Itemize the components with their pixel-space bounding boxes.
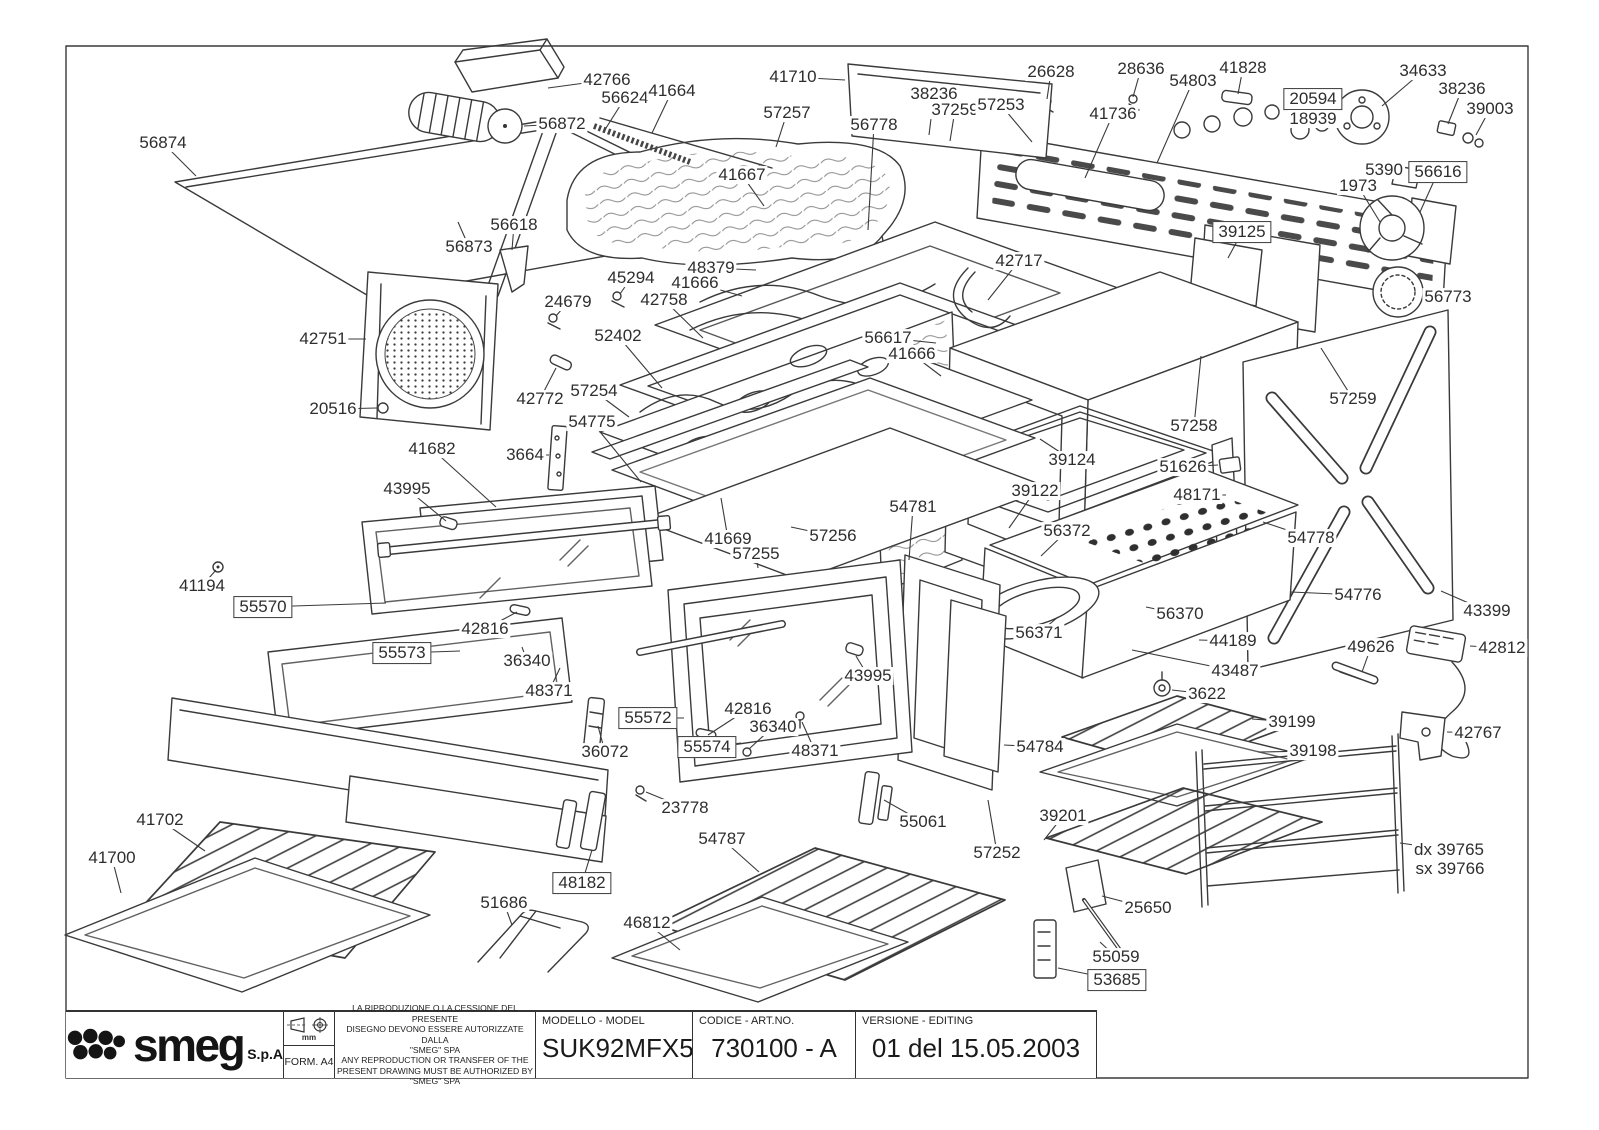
part-label-1973-26: 1973 bbox=[1337, 177, 1379, 195]
manufacturer-name: smeg bbox=[133, 1022, 243, 1068]
code-value: 730100 - A bbox=[699, 1033, 849, 1064]
part-label-44189-68: 44189 bbox=[1207, 632, 1258, 650]
part-label-55061-91: 55061 bbox=[897, 813, 948, 831]
part-label-51686-88: 51686 bbox=[478, 894, 529, 912]
part-label-48182-85: 48182 bbox=[552, 872, 611, 894]
part-label-57253-13: 57253 bbox=[975, 96, 1026, 114]
part-label-54776-58: 54776 bbox=[1332, 586, 1383, 604]
part-label-48171-55: 48171 bbox=[1171, 486, 1222, 504]
code-cell: CODICE - ART.NO. 730100 - A bbox=[692, 1010, 855, 1078]
part-label-42758-33: 42758 bbox=[638, 291, 689, 309]
part-label-39125-27: 39125 bbox=[1212, 221, 1271, 243]
legal-notice: LA RIPRODUZIONE O LA CESSIONE DEL PRESEN… bbox=[334, 1010, 535, 1078]
code-label: CODICE - ART.NO. bbox=[699, 1015, 849, 1027]
part-label-42816-46: 42816 bbox=[459, 620, 510, 638]
part-label-sx-39766-98: sx 39766 bbox=[1414, 860, 1487, 878]
part-label-41194-44: 41194 bbox=[177, 577, 227, 595]
part-label-26628-14: 26628 bbox=[1025, 63, 1076, 81]
company-suffix: S.p.A bbox=[247, 1046, 283, 1062]
part-label-57256-61: 57256 bbox=[807, 527, 858, 545]
part-label-56616-25: 56616 bbox=[1408, 161, 1467, 183]
model-value: SUK92MFX5 bbox=[542, 1033, 686, 1064]
part-label-54803-16: 54803 bbox=[1167, 72, 1218, 90]
part-label-42751-36: 42751 bbox=[297, 330, 348, 348]
part-label-41700-87: 41700 bbox=[86, 849, 137, 867]
part-label-41682-42: 41682 bbox=[406, 440, 457, 458]
legal-line: PRESENT DRAWING MUST BE AUTHORIZED BY bbox=[337, 1066, 533, 1076]
part-label-39122-64: 39122 bbox=[1009, 482, 1060, 500]
legal-line: "SMEG" SPA bbox=[410, 1045, 460, 1055]
part-label-45294-32: 45294 bbox=[605, 269, 656, 287]
part-label-41664-2: 41664 bbox=[646, 82, 697, 100]
part-label-42772-38: 42772 bbox=[514, 390, 565, 408]
parts-diagram-page: { "document": { "kind": "exploded parts … bbox=[0, 0, 1599, 1130]
part-label-56778-10: 56778 bbox=[848, 116, 899, 134]
part-label-54781-63: 54781 bbox=[887, 498, 938, 516]
projection-symbol: mm bbox=[284, 1012, 334, 1046]
part-label-39124-52: 39124 bbox=[1046, 451, 1097, 469]
part-label-53685-96: 53685 bbox=[1087, 969, 1146, 991]
part-label-56773-28: 56773 bbox=[1422, 288, 1473, 306]
part-label-43995-43: 43995 bbox=[381, 480, 432, 498]
part-label-41828-17: 41828 bbox=[1217, 59, 1268, 77]
legal-line: LA RIPRODUZIONE O LA CESSIONE DEL PRESEN… bbox=[335, 1003, 535, 1024]
version-value: 01 del 15.05.2003 bbox=[862, 1033, 1090, 1064]
part-label-43399-59: 43399 bbox=[1461, 602, 1512, 620]
legal-line: DISEGNO DEVONO ESSERE AUTORIZZATE DALLA bbox=[335, 1024, 535, 1045]
part-label-57258-53: 57258 bbox=[1168, 417, 1219, 435]
part-label-41710-7: 41710 bbox=[767, 68, 818, 86]
part-label-34633-19: 34633 bbox=[1397, 62, 1448, 80]
part-label-54784-76: 54784 bbox=[1014, 738, 1065, 756]
part-label-42767-73: 42767 bbox=[1452, 724, 1503, 742]
model-cell: MODELLO - MODEL SUK92MFX5 bbox=[535, 1010, 692, 1078]
legal-line: ANY REPRODUCTION OR TRANSFER OF THE bbox=[341, 1055, 528, 1065]
form-label: FORM. A4 bbox=[284, 1046, 334, 1077]
units-label: mm bbox=[302, 1033, 316, 1042]
version-cell: VERSIONE - EDITING 01 del 15.05.2003 bbox=[855, 1010, 1097, 1078]
part-label-dx-39765-97: dx 39765 bbox=[1412, 841, 1486, 859]
part-label-36340-80: 36340 bbox=[747, 718, 798, 736]
part-label-57255-62: 57255 bbox=[730, 545, 781, 563]
part-label-55574-81: 55574 bbox=[677, 736, 736, 758]
part-label-37259-12: 37259 bbox=[929, 101, 980, 119]
part-label-42766-0: 42766 bbox=[581, 71, 632, 89]
smeg-dots-logo-icon bbox=[66, 1025, 129, 1065]
part-label-43995-83: 43995 bbox=[842, 667, 893, 685]
part-label-39003-23: 39003 bbox=[1464, 100, 1515, 118]
part-label-36340-48: 36340 bbox=[501, 652, 552, 670]
part-label-56618-6: 56618 bbox=[488, 216, 539, 234]
part-label-46812-90: 46812 bbox=[621, 914, 672, 932]
part-label-49626-71: 49626 bbox=[1345, 638, 1396, 656]
part-label-3664-41: 3664 bbox=[504, 446, 546, 464]
part-label-25650-94: 25650 bbox=[1122, 899, 1173, 917]
part-label-39198-75: 39198 bbox=[1287, 742, 1338, 760]
part-label-48371-82: 48371 bbox=[789, 742, 840, 760]
part-label-54778-57: 54778 bbox=[1285, 529, 1336, 547]
part-label-20516-37: 20516 bbox=[307, 400, 358, 418]
part-label-52402-35: 52402 bbox=[592, 327, 643, 345]
part-label-28636-15: 28636 bbox=[1115, 60, 1166, 78]
manufacturer-logo: smeg S.p.A bbox=[66, 1010, 283, 1078]
part-label-54787-89: 54787 bbox=[696, 830, 747, 848]
part-label-42816-79: 42816 bbox=[722, 700, 773, 718]
part-label-20594-20: 20594 bbox=[1283, 88, 1342, 110]
version-label: VERSIONE - EDITING bbox=[862, 1015, 1090, 1027]
part-label-38236-22: 38236 bbox=[1436, 80, 1487, 98]
part-label-24679-34: 24679 bbox=[542, 293, 593, 311]
part-label-3622-70: 3622 bbox=[1186, 685, 1228, 703]
part-label-57257-8: 57257 bbox=[761, 104, 812, 122]
part-label-42812-72: 42812 bbox=[1476, 639, 1527, 657]
part-label-55570-45: 55570 bbox=[233, 596, 292, 618]
legal-line: "SMEG" SPA bbox=[410, 1076, 460, 1086]
part-label-56370-66: 56370 bbox=[1154, 605, 1205, 623]
part-label-42717-29: 42717 bbox=[993, 252, 1044, 270]
part-label-18939-21: 18939 bbox=[1287, 110, 1338, 128]
part-label-48371-49: 48371 bbox=[523, 682, 574, 700]
part-label-57254-39: 57254 bbox=[568, 382, 619, 400]
part-label-56873-5: 56873 bbox=[443, 238, 494, 256]
part-label-56872-3: 56872 bbox=[536, 115, 587, 133]
part-label-36072-77: 36072 bbox=[579, 743, 630, 761]
part-labels: 4276656624416645687256874568735661841710… bbox=[0, 0, 1599, 1130]
part-label-55059-95: 55059 bbox=[1090, 948, 1141, 966]
part-label-55573-47: 55573 bbox=[372, 642, 431, 664]
part-label-39201-93: 39201 bbox=[1037, 807, 1088, 825]
part-label-41666-51: 41666 bbox=[886, 345, 937, 363]
part-label-23778-84: 23778 bbox=[659, 799, 710, 817]
part-label-56371-67: 56371 bbox=[1013, 624, 1064, 642]
part-label-41736-18: 41736 bbox=[1087, 105, 1138, 123]
part-label-51626-54: 51626 bbox=[1157, 458, 1208, 476]
part-label-54775-40: 54775 bbox=[566, 413, 617, 431]
part-label-57259-56: 57259 bbox=[1327, 390, 1378, 408]
model-label: MODELLO - MODEL bbox=[542, 1015, 686, 1027]
part-label-57252-92: 57252 bbox=[971, 844, 1022, 862]
part-label-39199-74: 39199 bbox=[1266, 713, 1317, 731]
part-label-43487-69: 43487 bbox=[1209, 662, 1260, 680]
projection-cell: mm FORM. A4 bbox=[283, 1010, 334, 1078]
part-label-41667-9: 41667 bbox=[716, 166, 767, 184]
part-label-41702-86: 41702 bbox=[134, 811, 185, 829]
part-label-56874-4: 56874 bbox=[137, 134, 188, 152]
part-label-56372-65: 56372 bbox=[1041, 522, 1092, 540]
part-label-55572-78: 55572 bbox=[618, 707, 677, 729]
part-label-56624-1: 56624 bbox=[599, 89, 650, 107]
